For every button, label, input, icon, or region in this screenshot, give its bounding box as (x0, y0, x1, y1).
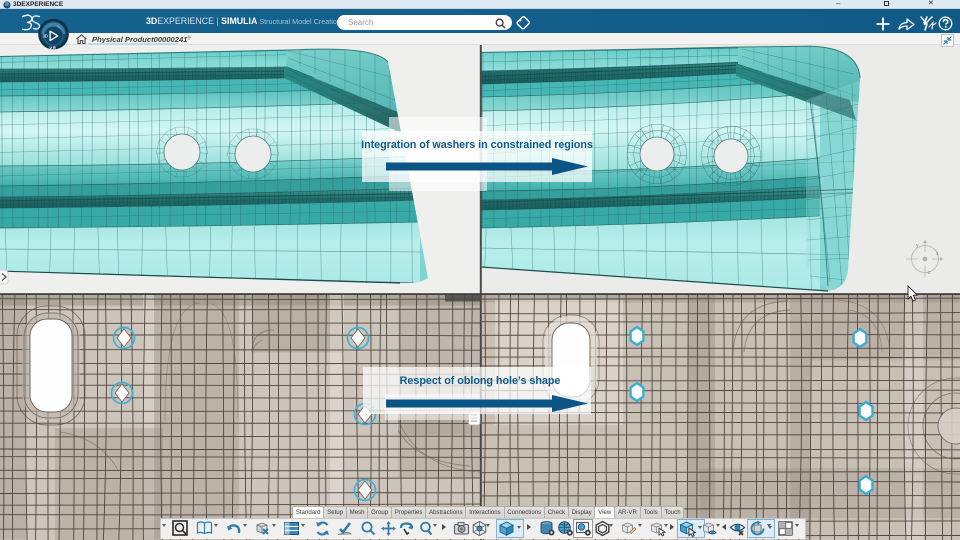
svg-text:Respect of oblong hole’s shape: Respect of oblong hole’s shape (400, 375, 561, 387)
svg-text:3D: 3D (42, 34, 47, 39)
svg-text:V,R: V,R (49, 45, 56, 50)
svg-text:Integration of washers in cons: Integration of washers in constrained re… (361, 139, 593, 151)
